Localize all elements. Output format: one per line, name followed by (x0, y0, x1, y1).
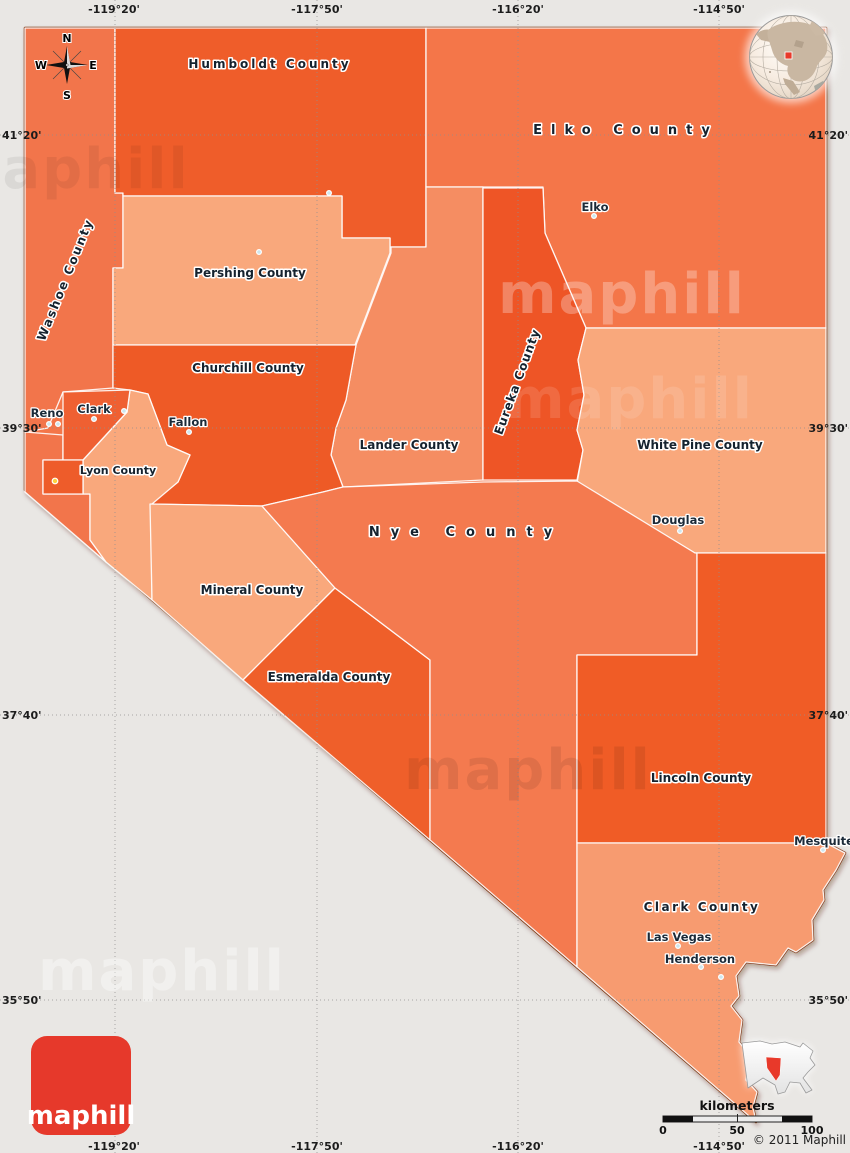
watermark-text: maphill (0, 137, 190, 202)
compass-south: S (63, 89, 71, 102)
city-dot-reno (47, 422, 52, 427)
label-nye: Nye County (369, 525, 563, 540)
compass-north: N (62, 32, 71, 45)
coord-right-3: 37°40' (809, 709, 848, 722)
map-stage: maphill maphill maphill maphill maphill … (0, 0, 850, 1153)
coord-top-1: -119°20' (88, 3, 140, 16)
coord-left-3: 37°40' (2, 709, 41, 722)
label-pershing: Pershing County (194, 266, 306, 280)
label-humboldt: Humboldt County (188, 57, 351, 71)
coord-right-2: 39°30' (809, 422, 848, 435)
coord-right-4: 35°50' (809, 994, 848, 1007)
label-lincoln: Lincoln County (651, 771, 751, 785)
label-lander: Lander County (360, 438, 459, 452)
coord-bottom-1: -119°20' (88, 1140, 140, 1153)
label-clark-county: Clark County (644, 900, 761, 914)
coord-right-1: 41°20' (809, 129, 848, 142)
label-henderson: Henderson (665, 952, 735, 966)
maphill-logo-text: maphill (27, 1101, 136, 1131)
label-white-pine: White Pine County (637, 438, 763, 452)
label-mineral: Mineral County (201, 583, 304, 597)
city-dot-lovelock (257, 250, 262, 255)
scale-tick-0: 0 (659, 1124, 667, 1137)
capital-dot-carson-city (52, 478, 58, 484)
copyright-text: © 2011 Maphill (753, 1133, 846, 1147)
watermark-text: maphill (506, 367, 754, 432)
scale-tick-50: 50 (729, 1124, 745, 1137)
city-dot-sparks (56, 422, 61, 427)
coord-left-2: 39°30' (2, 422, 41, 435)
city-dot-winnemucca (327, 191, 332, 196)
city-dot-douglas (678, 529, 683, 534)
coord-bottom-4: -114°50' (693, 1140, 745, 1153)
label-fallon: Fallon (169, 415, 208, 429)
city-dot-fallon (187, 430, 192, 435)
maphill-logo[interactable]: maphill (27, 1036, 136, 1135)
city-dot-clark (92, 417, 97, 422)
coord-bottom-2: -117°50' (291, 1140, 343, 1153)
compass-east: E (89, 59, 97, 72)
label-lyon: Lyon County (80, 464, 156, 477)
label-churchill: Churchill County (192, 361, 304, 375)
county-washoe[interactable] (25, 28, 123, 432)
city-dot-las-vegas (676, 944, 681, 949)
label-clark-city: Clark (77, 402, 111, 416)
city-dot-fernley (122, 409, 127, 414)
label-douglas: Douglas (652, 513, 705, 527)
coord-left-1: 41°20' (2, 129, 41, 142)
compass-west: W (35, 59, 47, 72)
coord-left-4: 35°50' (2, 994, 41, 1007)
city-dot-elko (592, 214, 597, 219)
label-las-vegas: Las Vegas (647, 930, 712, 944)
scale-bar-title: kilometers (699, 1098, 774, 1113)
watermark-text: maphill (498, 262, 746, 327)
coord-top-2: -117°50' (291, 3, 343, 16)
county-carson-city[interactable] (43, 460, 83, 494)
label-elko-city: Elko (581, 200, 608, 214)
coord-bottom-3: -116°20' (492, 1140, 544, 1153)
watermark-text: maphill (404, 738, 652, 803)
nevada-county-map: maphill maphill maphill maphill maphill … (0, 0, 850, 1153)
globe-nevada-marker (785, 52, 792, 59)
coord-top-3: -116°20' (492, 3, 544, 16)
label-esmeralda: Esmeralda County (268, 670, 391, 684)
city-dot-boulder-city (719, 975, 724, 980)
watermark-text: maphill (38, 939, 286, 1004)
city-dot-mesquite (821, 848, 826, 853)
label-elko: Elko County (533, 123, 719, 138)
label-mesquite: Mesquite (794, 834, 850, 848)
label-reno: Reno (31, 406, 64, 420)
globe-locator[interactable] (745, 11, 837, 103)
coord-top-4: -114°50' (693, 3, 745, 16)
